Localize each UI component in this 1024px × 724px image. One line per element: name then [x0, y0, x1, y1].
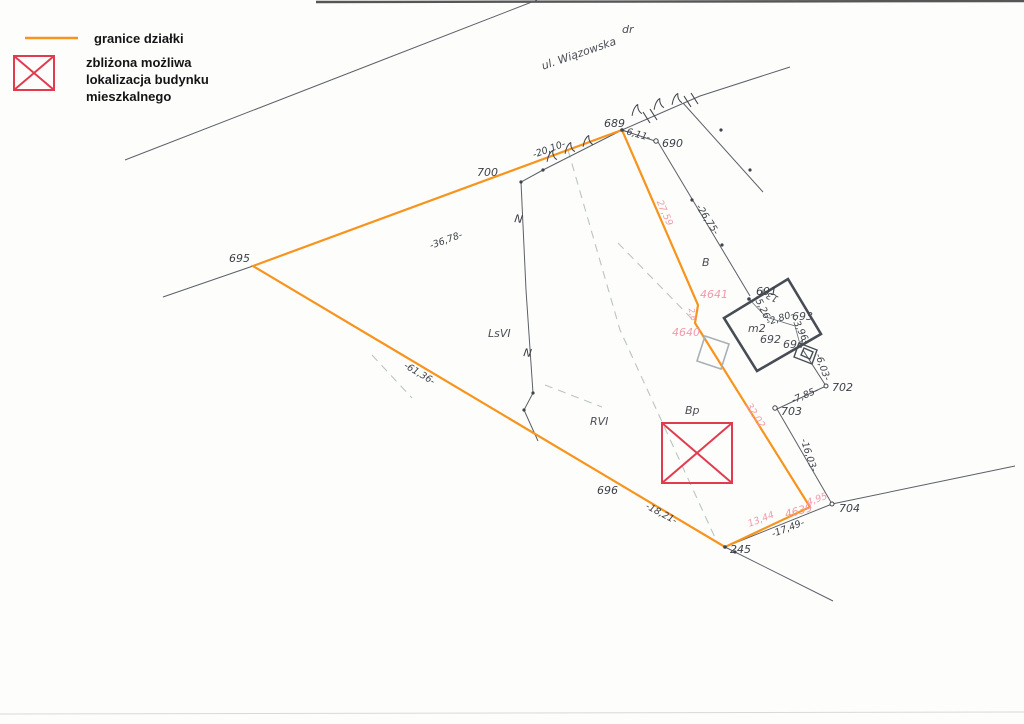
- point-label-700: 700: [477, 166, 498, 179]
- land-use-lsvi: LsVI: [488, 327, 511, 340]
- map-canvas: N N ul. Wiązowska dr 689 690 691 695 696…: [0, 0, 1024, 724]
- point-label-702: 702: [832, 381, 853, 394]
- point-label-245: 245: [730, 543, 751, 556]
- classification-dash-sw2: [545, 385, 602, 407]
- fence-mark-icon: N: [514, 212, 524, 226]
- point-label-703: 703: [781, 405, 802, 418]
- measurement-2-6: 2,6: [687, 307, 698, 321]
- legend-red-box-swatch: [14, 56, 54, 90]
- scan-edge-top: [316, 1, 1024, 2]
- street-name-label: ul. Wiązowska: [540, 35, 618, 73]
- gate-tick-icon: [643, 93, 698, 123]
- measurement-26-75: -26,75-: [693, 202, 721, 237]
- legend-boundary-label: granice działki: [94, 31, 184, 46]
- land-use-b: B: [702, 256, 710, 269]
- new-measurement-labels: 27,59 32,02 4,95 13,44 2,6: [654, 198, 829, 529]
- legend-building-label-line2: lokalizacja budynku: [86, 72, 209, 87]
- point-label-4640: 4640: [672, 326, 700, 339]
- measurement-4-95: 4,95: [805, 491, 829, 509]
- land-use-bp: Bp: [685, 404, 700, 417]
- road-spur-left: [163, 266, 253, 297]
- measurement-6-03: -6,03-: [812, 352, 832, 383]
- fence-line-northeast: [683, 103, 763, 192]
- measurement-13-44: 13,44: [746, 510, 775, 530]
- measurement-18-21: -18,21-: [644, 501, 680, 527]
- legend-building-label-line1: zbliżona możliwa: [86, 55, 192, 70]
- legend: granice działki zbliżona możliwa lokaliz…: [14, 31, 209, 104]
- parcel-boundary: [253, 130, 810, 547]
- building-type-label: m2: [748, 322, 766, 335]
- point-label-690: 690: [662, 137, 683, 150]
- land-use-labels: B Bp RVI LsVI: [488, 256, 710, 428]
- point-labels: 689 690 691 695 696 700 702 703 704 245 …: [229, 117, 860, 556]
- land-use-rvi: RVI: [590, 415, 608, 428]
- point-label-689: 689: [604, 117, 625, 130]
- point-label-704: 704: [839, 502, 860, 515]
- point-label-696: 696: [597, 484, 618, 497]
- proposed-building-box: [662, 423, 732, 483]
- classification-dash-mid: [618, 243, 695, 322]
- legend-building-label-line3: mieszkalnego: [86, 89, 171, 104]
- road-class-label: dr: [622, 23, 635, 36]
- measurement-7-85: -7,85-: [790, 385, 821, 406]
- scan-edge-bottom: [0, 712, 1024, 714]
- measurement-16-03: -16,03-: [798, 437, 819, 473]
- point-label-4641: 4641: [700, 288, 728, 301]
- boundary-704-east: [832, 466, 1015, 504]
- measurement-36-78: -36,78-: [428, 229, 464, 251]
- point-label-695: 695: [229, 252, 250, 265]
- road-edge-east: [622, 67, 790, 130]
- measurement-17-49: -17,49-: [770, 517, 806, 540]
- measurement-32-02: 32,02: [743, 401, 767, 430]
- cadastral-map-page: N N ul. Wiązowska dr 689 690 691 695 696…: [0, 0, 1024, 724]
